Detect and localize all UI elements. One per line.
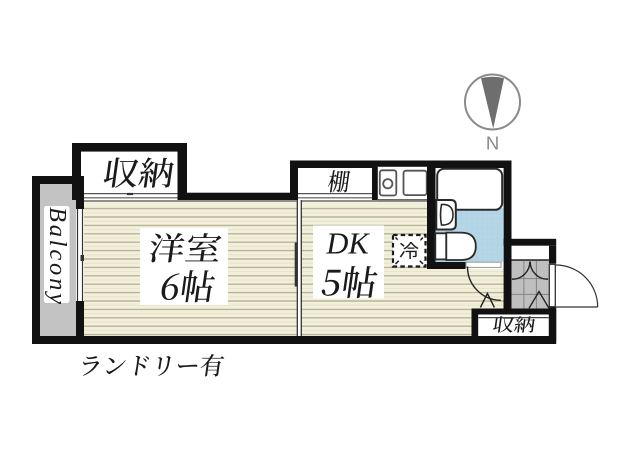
svg-text:Balcony: Balcony [44, 207, 71, 304]
svg-text:N: N [486, 133, 499, 154]
svg-text:DK: DK [325, 227, 370, 261]
